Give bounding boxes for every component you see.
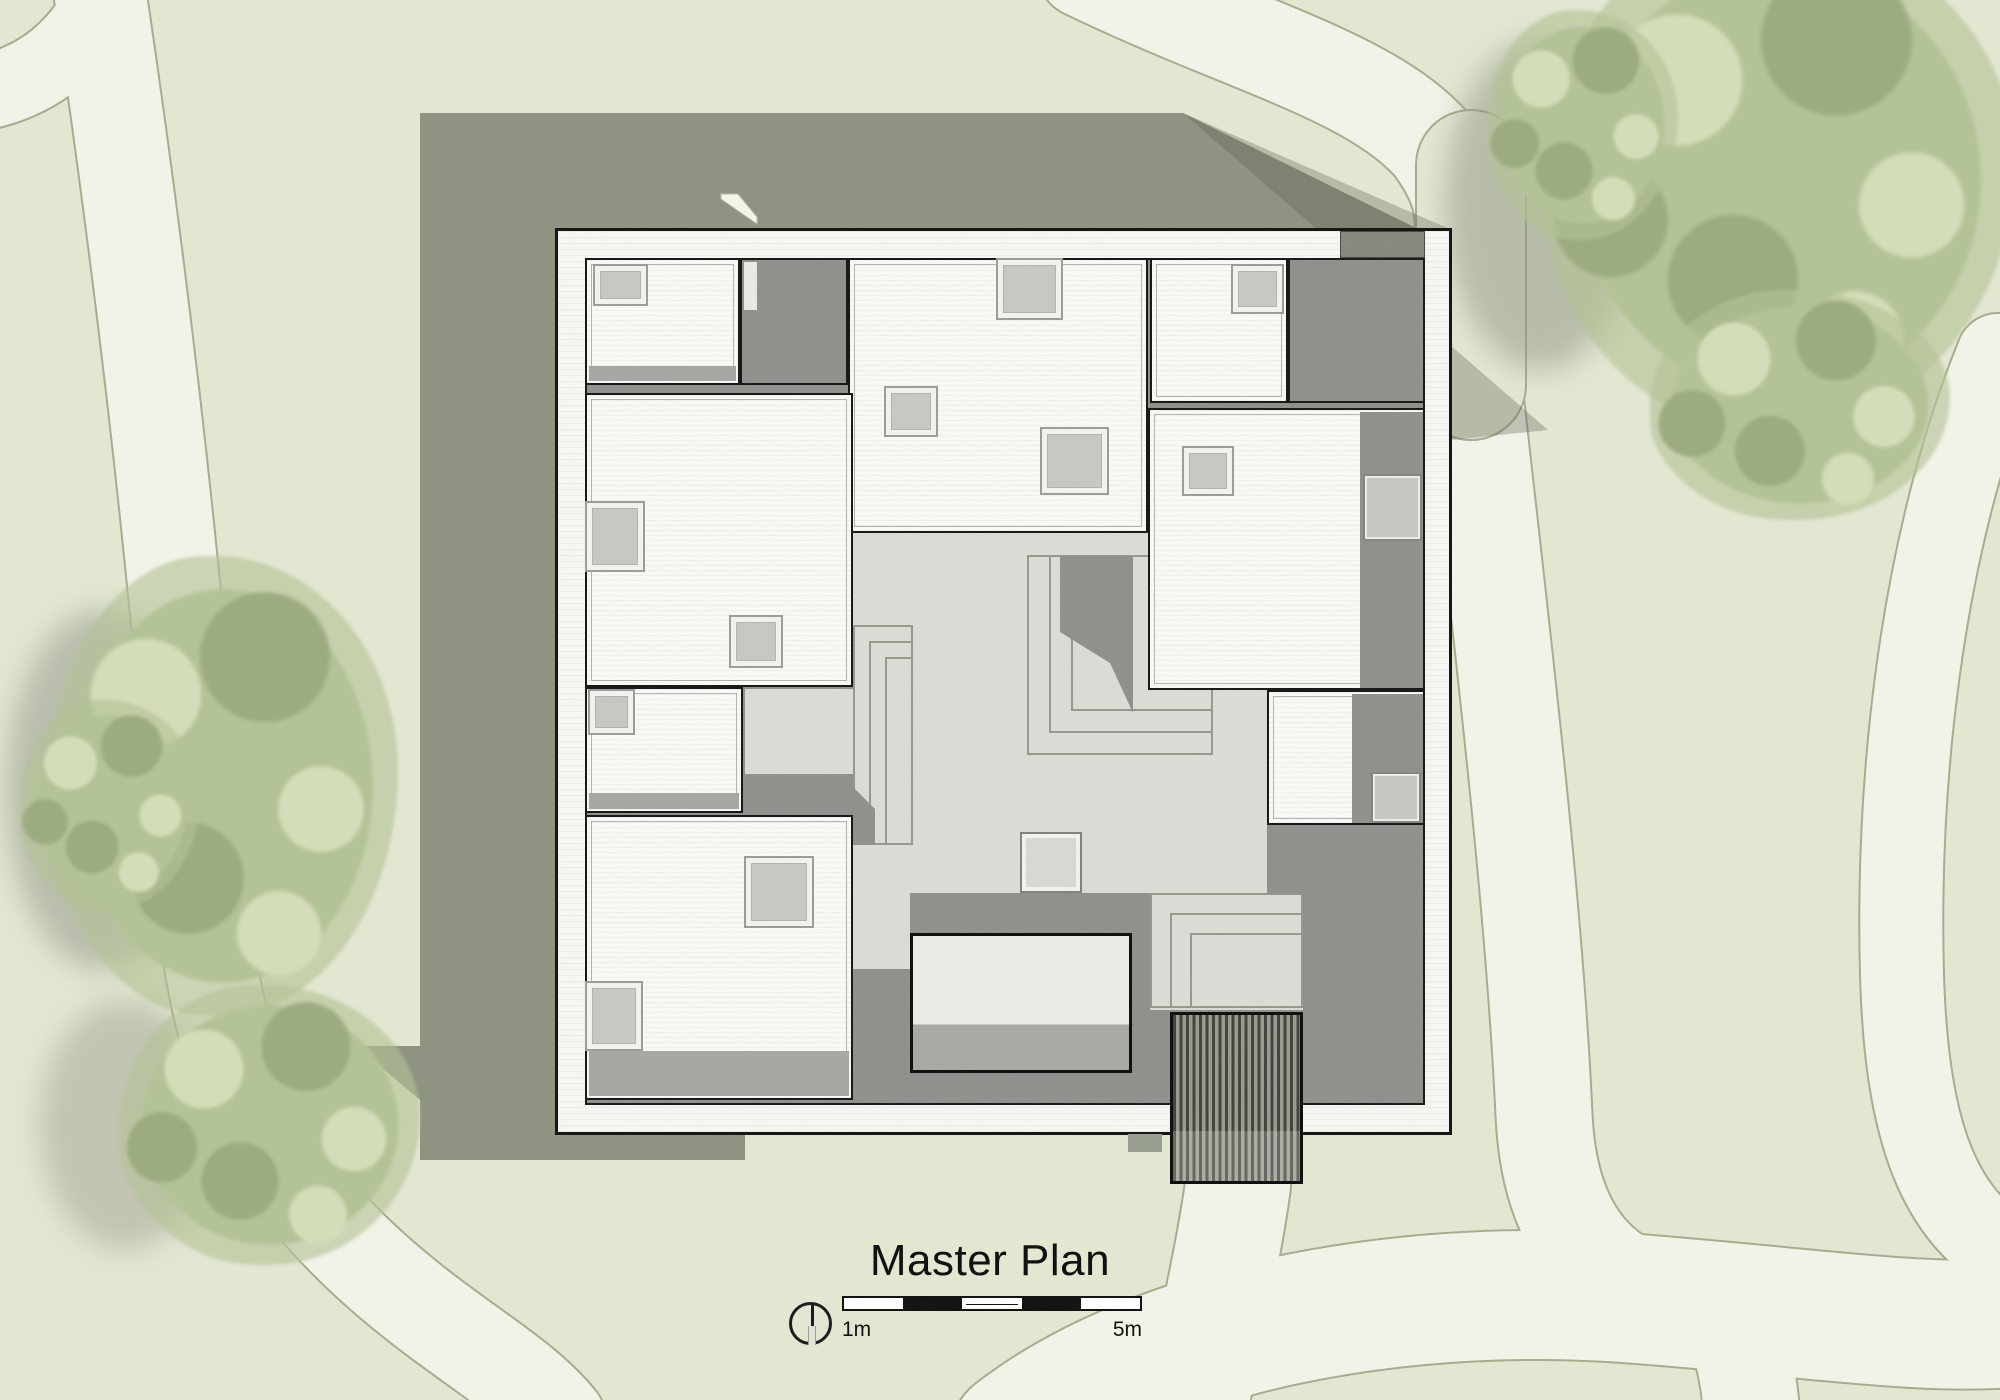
scale-bar — [842, 1296, 1142, 1311]
scale-end-label: 5m — [1113, 1318, 1142, 1342]
north-indicator-icon — [789, 1302, 832, 1345]
page-title: Master Plan — [790, 1236, 1190, 1286]
scale-start-label: 1m — [842, 1318, 871, 1342]
wall-flap — [0, 0, 2000, 1400]
scale-labels: 1m 5m — [842, 1318, 1142, 1342]
master-plan-drawing: Master Plan 1m 5m — [0, 0, 2000, 1400]
